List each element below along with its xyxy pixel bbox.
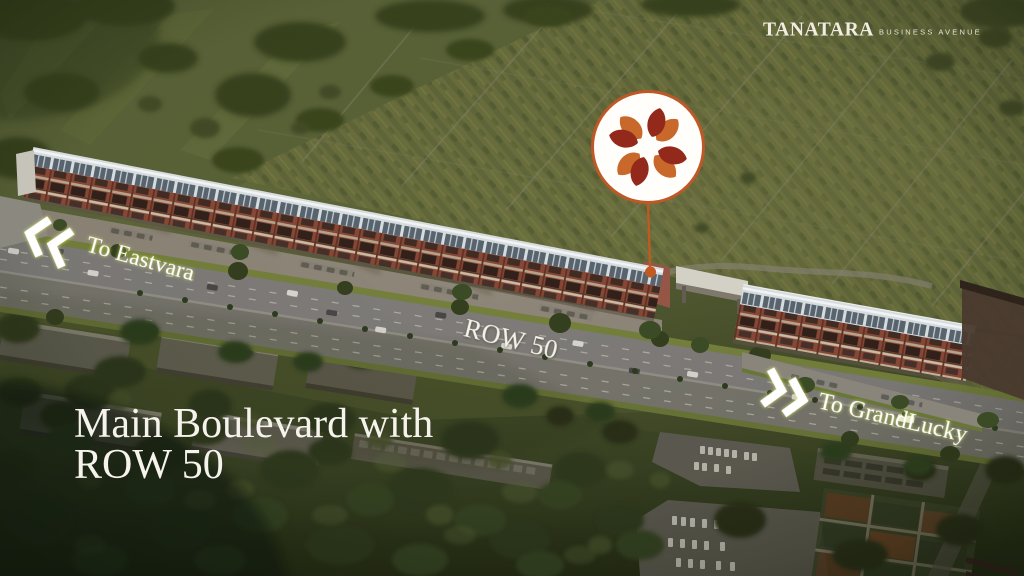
svg-text:ROW 50: ROW 50 [74,442,224,488]
svg-text:Main Boulevard with: Main Boulevard with [74,401,433,447]
svg-text:TANATARA: TANATARA [763,20,874,41]
svg-text:BUSINESS AVENUE: BUSINESS AVENUE [879,28,982,37]
